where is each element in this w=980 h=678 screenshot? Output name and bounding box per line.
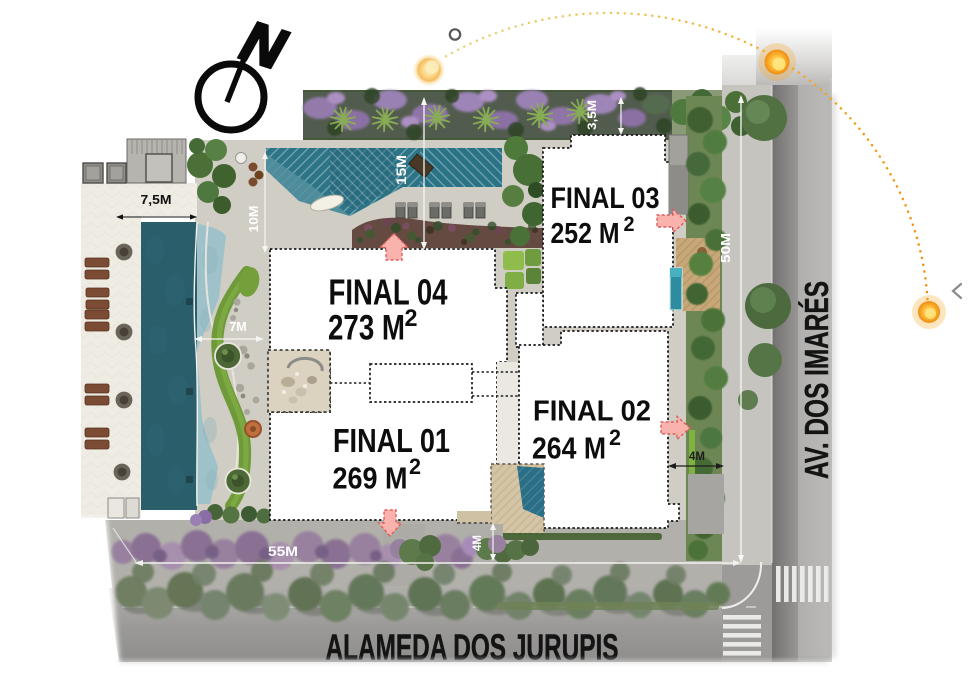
svg-text:2: 2 bbox=[409, 454, 421, 479]
svg-text:2: 2 bbox=[624, 213, 635, 236]
svg-text:55M: 55M bbox=[268, 544, 298, 559]
svg-text:7M: 7M bbox=[229, 320, 246, 334]
svg-text:264 M: 264 M bbox=[532, 431, 606, 466]
svg-text:FINAL 04: FINAL 04 bbox=[329, 272, 448, 313]
svg-text:FINAL 01: FINAL 01 bbox=[333, 423, 450, 460]
svg-text:4M: 4M bbox=[472, 535, 484, 551]
svg-text:10M: 10M bbox=[247, 206, 261, 233]
svg-text:15M: 15M bbox=[393, 155, 409, 185]
svg-text:7,5M: 7,5M bbox=[141, 193, 172, 207]
svg-text:2: 2 bbox=[609, 425, 621, 450]
svg-text:273 M: 273 M bbox=[328, 309, 405, 348]
svg-text:3,5M: 3,5M bbox=[587, 100, 599, 130]
svg-text:FINAL 03: FINAL 03 bbox=[551, 182, 660, 215]
svg-text:252 M: 252 M bbox=[551, 218, 620, 250]
svg-text:4M: 4M bbox=[689, 451, 705, 463]
svg-text:2: 2 bbox=[405, 305, 418, 332]
svg-text:FINAL 02: FINAL 02 bbox=[533, 396, 651, 428]
svg-text:50M: 50M bbox=[718, 233, 733, 263]
svg-text:269 M: 269 M bbox=[333, 461, 408, 496]
